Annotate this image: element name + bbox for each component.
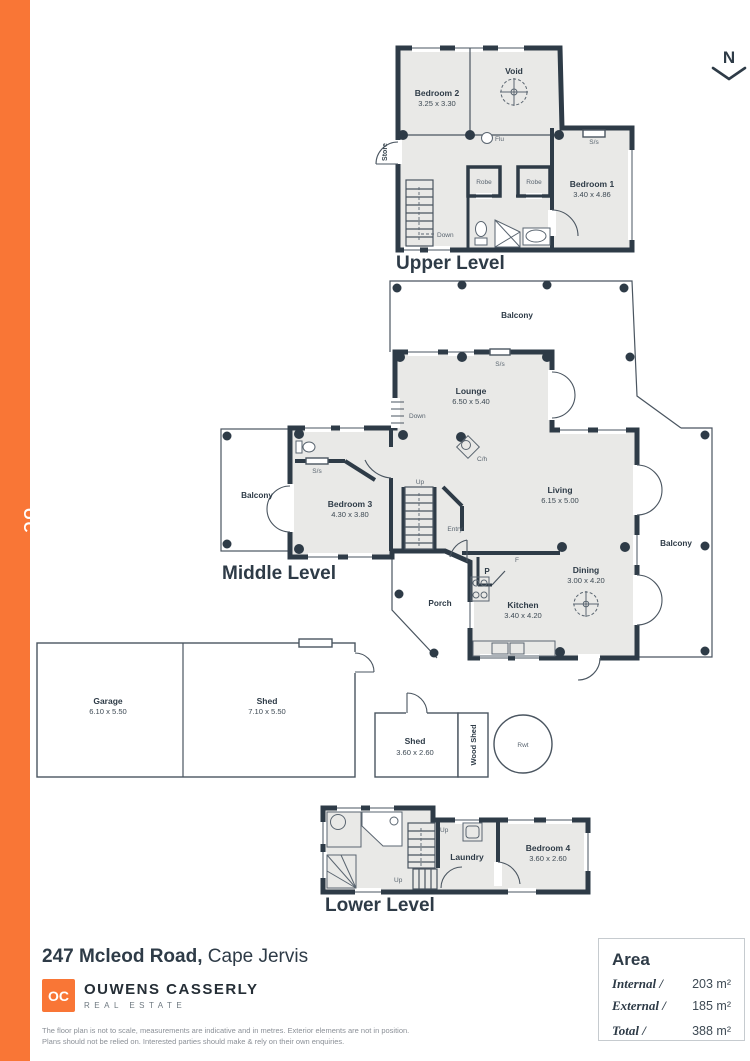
ss-bath-label: S/s bbox=[312, 468, 322, 475]
balcony-left-label: Balcony bbox=[241, 491, 273, 500]
room-label-bedroom2: Bedroom 2 bbox=[415, 88, 460, 98]
shed-side-door bbox=[351, 652, 374, 673]
room-label-living: Living bbox=[547, 485, 572, 495]
floorplan-page: OC N Store bbox=[0, 0, 750, 1061]
wood-shed-label: Wood Shed bbox=[469, 724, 478, 766]
store-label: Store bbox=[382, 143, 389, 161]
area-row-total: Total / 388 m² bbox=[612, 1023, 731, 1039]
dims-bedroom1: 3.40 x 4.86 bbox=[573, 190, 611, 199]
area-value-internal: 203 m² bbox=[692, 977, 731, 991]
area-row-internal: Internal / 203 m² bbox=[612, 976, 731, 992]
lounge-balcony-doors bbox=[548, 370, 575, 420]
dims-living: 6.15 x 5.00 bbox=[541, 496, 579, 505]
disclaimer-line-1: The floor plan is not to scale, measurem… bbox=[42, 1025, 582, 1036]
dims-lounge: 6.50 x 5.40 bbox=[452, 397, 490, 406]
area-title: Area bbox=[612, 950, 731, 970]
dims-dining: 3.00 x 4.20 bbox=[567, 576, 605, 585]
dims-bedroom4: 3.60 x 2.60 bbox=[529, 854, 567, 863]
upper-level-title: Upper Level bbox=[396, 253, 505, 274]
room-label-dining: Dining bbox=[573, 565, 599, 575]
room-label-shed-large: Shed bbox=[257, 696, 278, 706]
robe-2: Robe bbox=[518, 167, 550, 199]
up1-label: Up bbox=[440, 827, 449, 834]
agency-logo-mark: OC bbox=[42, 979, 75, 1012]
lower-level-plan: Up Up Laundry Bedroom 4 3.60 x 2.60 Lowe… bbox=[319, 804, 592, 916]
robe-1: Robe bbox=[468, 167, 500, 199]
bath-icon bbox=[523, 228, 550, 245]
address-street: 247 Mcleod Road, bbox=[42, 946, 203, 967]
ch-label: C/h bbox=[477, 456, 488, 463]
room-label-shed-small: Shed bbox=[405, 736, 426, 746]
toilet-icon bbox=[475, 222, 487, 246]
up2-label: Up bbox=[394, 877, 403, 884]
shed-small-door bbox=[406, 693, 427, 717]
flu-label: Flu bbox=[495, 136, 504, 143]
dims-shed-small: 3.60 x 2.60 bbox=[396, 748, 434, 757]
balcony-top-label: Balcony bbox=[501, 311, 533, 320]
store-door bbox=[376, 140, 402, 164]
dims-bedroom3: 4.30 x 3.80 bbox=[331, 510, 369, 519]
robe1-label: Robe bbox=[476, 179, 492, 186]
address-suburb: Cape Jervis bbox=[203, 946, 309, 967]
flu-icon bbox=[482, 133, 493, 144]
property-address: 247 Mcleod Road, Cape Jervis bbox=[42, 946, 582, 968]
room-label-laundry: Laundry bbox=[450, 852, 484, 862]
agency-logo-text: OUWENS CASSERLY REAL ESTATE bbox=[84, 981, 258, 1010]
dims-shed-large: 7.10 x 5.50 bbox=[248, 707, 286, 716]
lower-level-title: Lower Level bbox=[325, 895, 435, 916]
area-value-total: 388 m² bbox=[692, 1024, 731, 1038]
balcony-left-outline bbox=[221, 429, 293, 551]
room-label-bedroom4: Bedroom 4 bbox=[526, 843, 571, 853]
ss-lounge-label: S/s bbox=[495, 361, 505, 368]
upper-level-plan: Store Flu S/s bbox=[376, 44, 636, 274]
rwt-label: Rwt bbox=[517, 742, 528, 749]
ss-unit-icon bbox=[583, 130, 605, 137]
room-label-kitchen: Kitchen bbox=[507, 600, 538, 610]
footer: 247 Mcleod Road, Cape Jervis OC OUWENS C… bbox=[42, 946, 582, 1048]
disclaimer-line-2: Plans should not be relied on. Intereste… bbox=[42, 1036, 582, 1047]
robe2-label: Robe bbox=[526, 179, 542, 186]
room-label-void: Void bbox=[505, 66, 523, 76]
balcony-right-label: Balcony bbox=[660, 539, 692, 548]
floorplan-drawing: N Store bbox=[0, 0, 750, 930]
porch-label: Porch bbox=[428, 599, 451, 608]
area-label-external: External / bbox=[612, 998, 666, 1014]
agency-tagline: REAL ESTATE bbox=[84, 1001, 258, 1010]
middle-level-plan: S/s Up Down C bbox=[221, 281, 712, 681]
down-label-middle: Down bbox=[409, 413, 426, 420]
north-arrow-icon: N bbox=[713, 48, 745, 79]
agency-name: OUWENS CASSERLY bbox=[84, 981, 258, 998]
north-label: N bbox=[723, 48, 735, 67]
up-label: Up bbox=[416, 479, 425, 486]
area-label-total: Total / bbox=[612, 1023, 646, 1039]
middle-level-title: Middle Level bbox=[222, 563, 336, 584]
area-value-external: 185 m² bbox=[692, 999, 731, 1013]
ss-lounge-icon bbox=[490, 349, 510, 355]
area-label-internal: Internal / bbox=[612, 976, 663, 992]
dims-garage: 6.10 x 5.50 bbox=[89, 707, 127, 716]
disclaimer-text: The floor plan is not to scale, measurem… bbox=[42, 1025, 582, 1048]
dining-rear-door bbox=[578, 654, 600, 680]
down-label: Down bbox=[437, 232, 454, 239]
entry-label: Entry bbox=[447, 526, 463, 533]
area-summary-box: Area Internal / 203 m² External / 185 m²… bbox=[598, 938, 745, 1041]
roller-door-icon bbox=[299, 639, 332, 647]
room-label-garage: Garage bbox=[93, 696, 123, 706]
ss-label: S/s bbox=[589, 139, 599, 146]
garage-shed-outline bbox=[37, 643, 355, 777]
area-row-external: External / 185 m² bbox=[612, 998, 731, 1014]
fridge-label: F bbox=[515, 557, 519, 564]
room-label-bedroom3: Bedroom 3 bbox=[328, 499, 373, 509]
dims-bedroom2: 3.25 x 3.30 bbox=[418, 99, 456, 108]
room-label-bedroom1: Bedroom 1 bbox=[570, 179, 615, 189]
agency-logo: OC OUWENS CASSERLY REAL ESTATE bbox=[42, 979, 582, 1012]
room-label-lounge: Lounge bbox=[456, 386, 487, 396]
pantry-label: P bbox=[484, 567, 490, 576]
dims-kitchen: 3.40 x 4.20 bbox=[504, 611, 542, 620]
